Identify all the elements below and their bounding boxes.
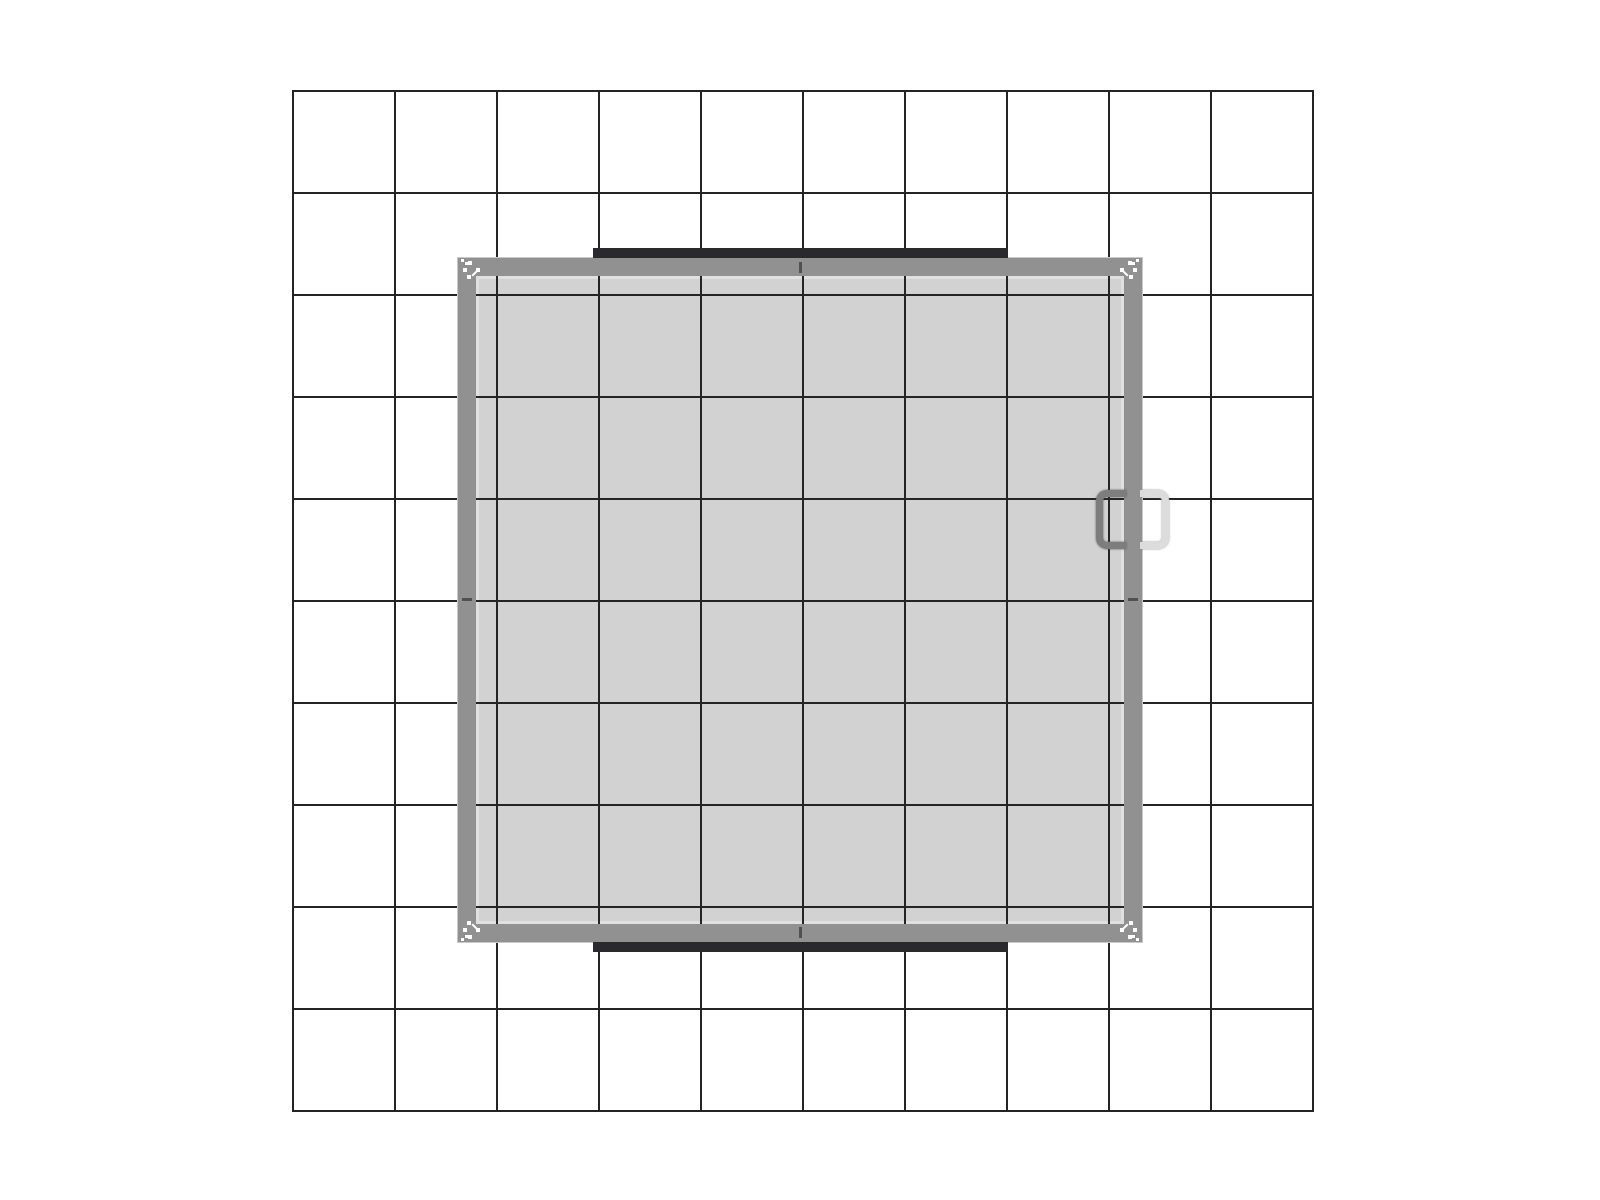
fastener-dot bbox=[463, 928, 467, 932]
frame-seam-left bbox=[462, 598, 472, 601]
fastener-dot bbox=[467, 275, 471, 279]
fastener-slash bbox=[471, 269, 478, 276]
fastener-slash bbox=[1121, 269, 1128, 276]
plan-canvas bbox=[0, 0, 1600, 1200]
fastener-dot bbox=[1136, 938, 1139, 941]
fastener-dot bbox=[1129, 921, 1133, 925]
fastener-dot bbox=[1132, 935, 1135, 938]
fastener-dot bbox=[468, 935, 472, 939]
fastener-dot bbox=[1132, 262, 1135, 265]
fastener-slash bbox=[1121, 923, 1128, 930]
fastener-dot bbox=[1136, 259, 1139, 262]
fastener-dot bbox=[1133, 268, 1137, 272]
fastener-dot bbox=[1128, 261, 1132, 265]
corner-fastener-marker-bottom-right bbox=[1116, 916, 1142, 942]
booth-perimeter-frame bbox=[458, 258, 1142, 942]
fastener-dot bbox=[468, 261, 472, 265]
frame-seam-top bbox=[799, 262, 802, 273]
header-bar-bottom bbox=[593, 942, 1008, 952]
corner-fastener-marker-top-right bbox=[1116, 258, 1142, 284]
fastener-dot bbox=[1133, 928, 1137, 932]
fastener-slash bbox=[471, 923, 478, 930]
fastener-dot bbox=[1128, 935, 1132, 939]
door-handle-inner bbox=[1096, 490, 1126, 549]
header-bar-top bbox=[593, 248, 1008, 258]
fastener-dot bbox=[461, 938, 464, 941]
door-handle-outer bbox=[1140, 490, 1169, 549]
corner-fastener-marker-top-left bbox=[458, 258, 484, 284]
corner-fastener-marker-bottom-left bbox=[458, 916, 484, 942]
fastener-dot bbox=[461, 259, 464, 262]
frame-seam-bottom bbox=[799, 927, 802, 938]
frame-seam-right bbox=[1128, 598, 1138, 601]
fastener-dot bbox=[1129, 275, 1133, 279]
fastener-dot bbox=[463, 268, 467, 272]
